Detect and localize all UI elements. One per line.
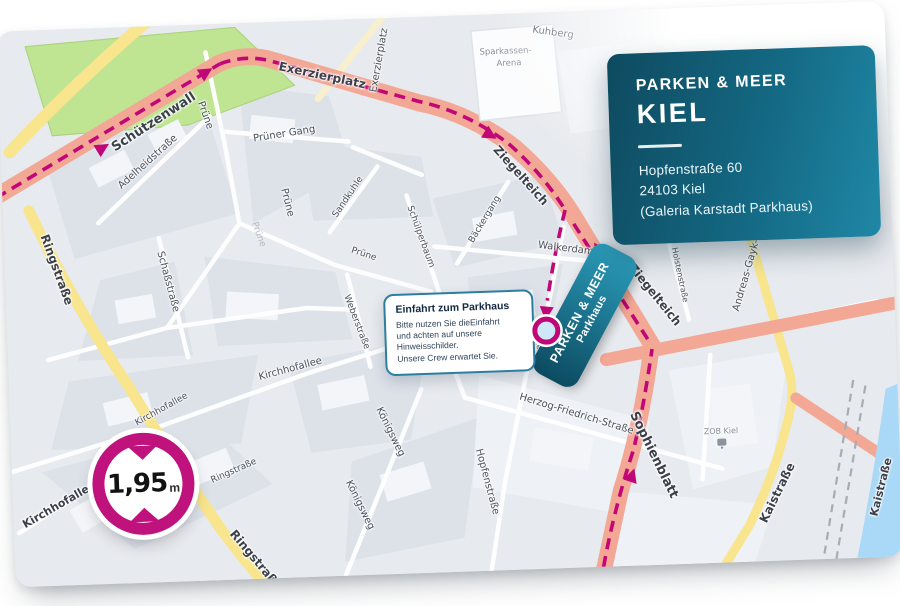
clearance-arrow-top-icon (127, 445, 157, 460)
page: Schützenwall Exerzierplatz Exerzierplatz… (0, 0, 900, 606)
brand-title: PARKEN & MEER (636, 70, 850, 95)
city-title: KIEL (636, 92, 851, 130)
entrance-tooltip: Einfahrt zum Parkhaus Bitte nutzen Sie d… (383, 289, 536, 376)
clearance-unit: m (169, 480, 180, 494)
tooltip-title: Einfahrt zum Parkhaus (395, 299, 522, 315)
map-label-zob-kiel: ZOB Kiel (704, 427, 739, 436)
clearance-arrow-bottom-icon (129, 507, 159, 522)
map-card: Schützenwall Exerzierplatz Exerzierplatz… (0, 1, 900, 588)
info-card: PARKEN & MEER KIEL Hopfenstraße 60 24103… (607, 45, 881, 245)
divider (638, 144, 682, 149)
clearance-value: 1,95 (107, 468, 168, 500)
